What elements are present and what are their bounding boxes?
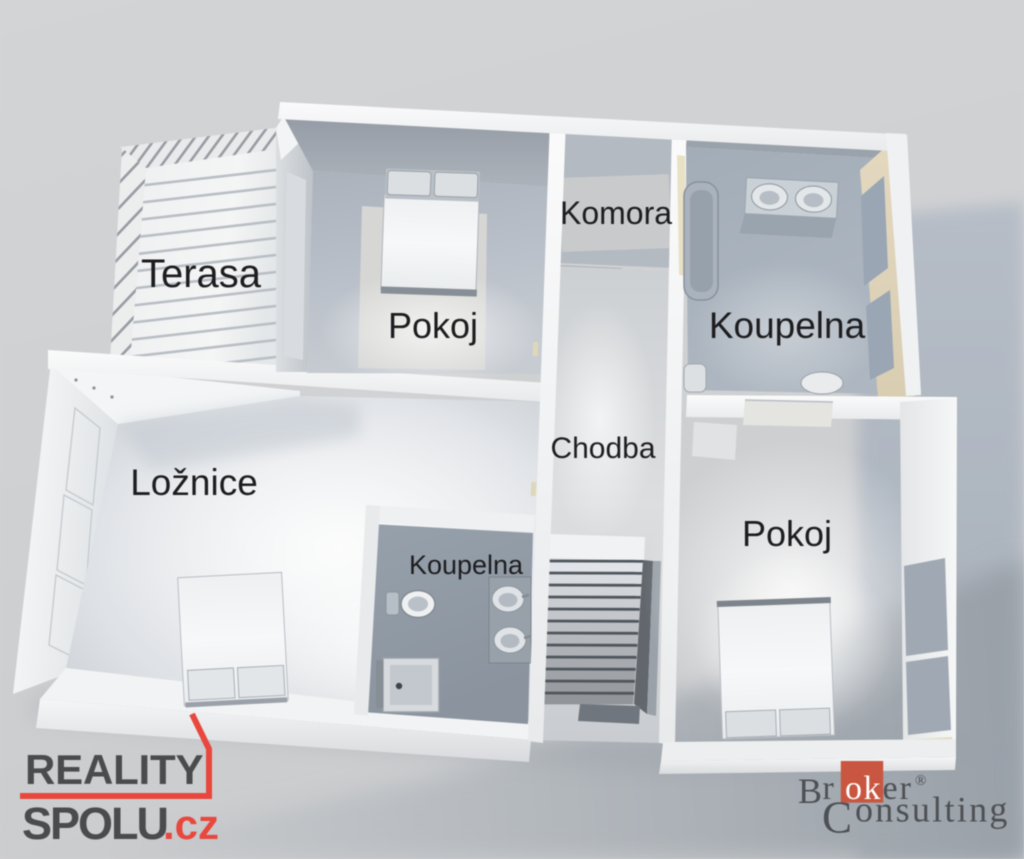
svg-text:Ložnice: Ložnice bbox=[130, 462, 258, 503]
svg-text:Koupelna: Koupelna bbox=[709, 305, 866, 346]
svg-text:Koupelna: Koupelna bbox=[409, 550, 524, 580]
svg-text:REALITY: REALITY bbox=[25, 746, 203, 793]
svg-text:Chodba: Chodba bbox=[550, 432, 655, 465]
svg-text:Terasa: Terasa bbox=[141, 252, 262, 296]
svg-text:Komora: Komora bbox=[560, 195, 672, 231]
svg-text:Pokoj: Pokoj bbox=[742, 513, 832, 554]
svg-text:onsulting: onsulting bbox=[855, 790, 1010, 830]
svg-text:.cz: .cz bbox=[163, 801, 219, 848]
svg-text:SPOLU: SPOLU bbox=[22, 798, 167, 849]
svg-text:C: C bbox=[822, 793, 852, 843]
svg-text:Pokoj: Pokoj bbox=[388, 305, 478, 346]
svg-text:®: ® bbox=[915, 773, 926, 789]
svg-text:B: B bbox=[798, 771, 822, 811]
